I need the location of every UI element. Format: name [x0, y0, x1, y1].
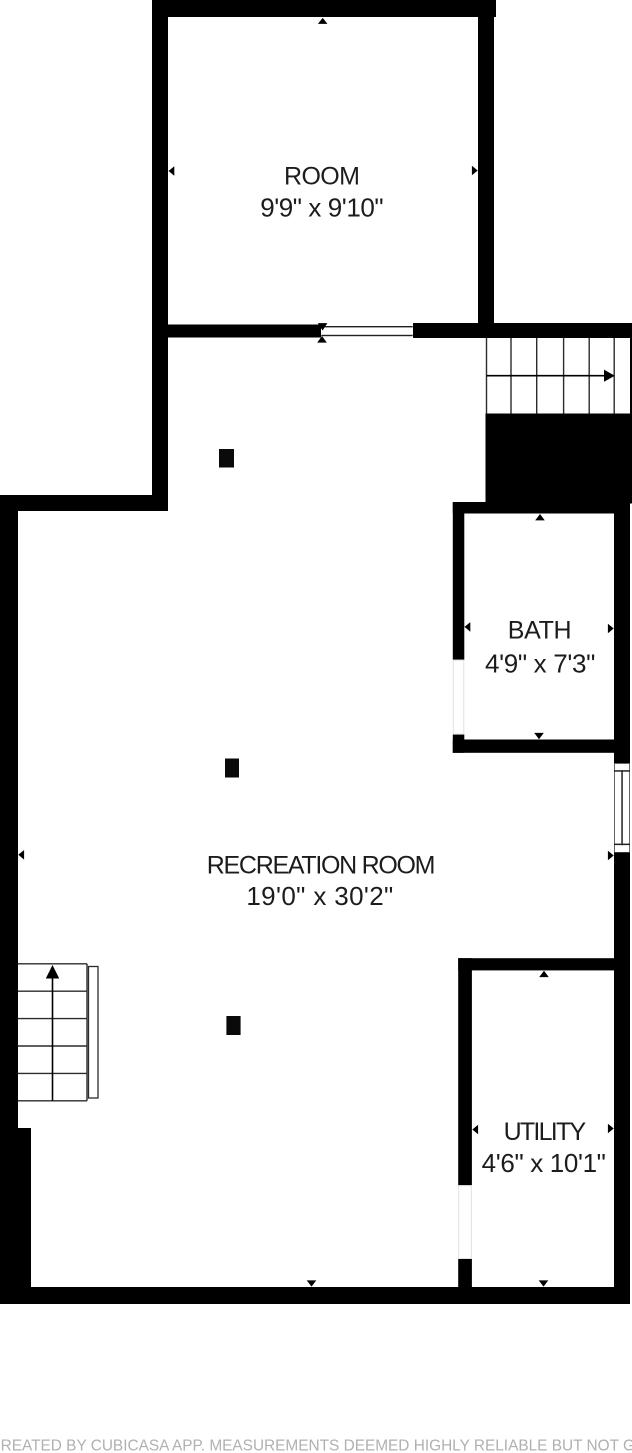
svg-text:4'9" x 7'3": 4'9" x 7'3" — [485, 649, 595, 679]
svg-text:CREATED BY CUBICASA APP. MEASU: CREATED BY CUBICASA APP. MEASUREMENTS DE… — [0, 1437, 632, 1453]
svg-text:9'9" x 9'10": 9'9" x 9'10" — [260, 193, 383, 223]
svg-text:19'0" x 30'2": 19'0" x 30'2" — [246, 881, 393, 911]
svg-text:UTILITY: UTILITY — [504, 1118, 587, 1146]
svg-text:BATH: BATH — [508, 616, 572, 644]
svg-text:4'6" x 10'1": 4'6" x 10'1" — [482, 1148, 606, 1178]
svg-text:RECREATION ROOM: RECREATION ROOM — [207, 851, 434, 879]
svg-text:ROOM: ROOM — [284, 163, 359, 191]
